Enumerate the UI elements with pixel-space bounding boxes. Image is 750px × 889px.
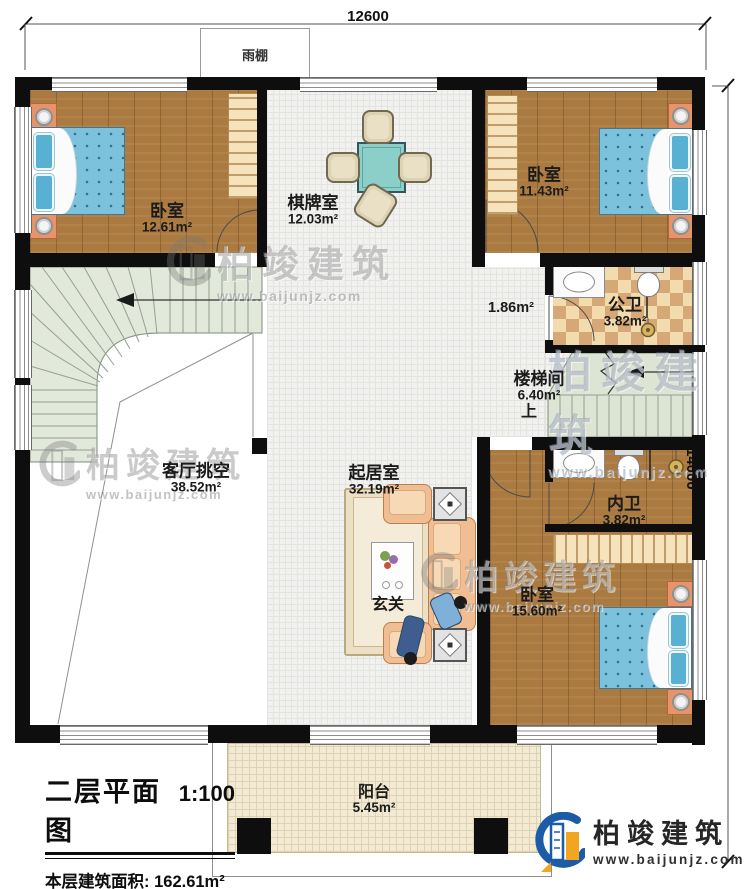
balcony-door [310, 725, 430, 745]
cushion [433, 558, 461, 590]
lamp-icon [672, 693, 690, 711]
nightstand [667, 581, 694, 607]
wall-segment [15, 725, 60, 743]
pillow [34, 174, 54, 211]
side-table [433, 628, 467, 662]
chair-seat [358, 187, 394, 223]
wall-segment [477, 437, 490, 733]
chair-seat [367, 115, 389, 139]
coffee-table [371, 542, 414, 600]
stair-up-label: 上 [521, 403, 537, 420]
room-name: 卧室 [142, 203, 192, 221]
room-area: 3.82m² [603, 514, 646, 529]
nightstand [30, 103, 57, 130]
bed [599, 128, 694, 215]
room-label-game-room: 棋牌室 12.03m² [288, 195, 339, 228]
balcony-column [474, 818, 508, 854]
wall-segment [692, 215, 705, 262]
wall-segment [257, 90, 267, 267]
window [692, 560, 707, 700]
floor-plan-canvas: 12600 14000 雨棚 [0, 0, 750, 889]
room-label-bedroom-bottom-right: 卧室 15.60m² [512, 587, 562, 620]
plan-title: 二层平面图 [45, 770, 169, 848]
curved-staircase [30, 267, 262, 462]
room-area: 5.45m² [353, 801, 396, 816]
room-name: 棋牌室 [288, 195, 339, 213]
room-label-private-bath: 内卫 3.82m² [603, 496, 646, 529]
person-figure [392, 614, 428, 666]
room-label-balcony: 阳台 5.45m² [353, 784, 396, 816]
room-name: 楼梯间 [514, 371, 565, 389]
room-name: 卧室 [519, 167, 569, 185]
bed [599, 607, 692, 689]
toilet [634, 263, 662, 297]
person-head [404, 652, 417, 665]
window [14, 107, 32, 233]
wall-segment [540, 253, 692, 267]
wall-segment [15, 233, 30, 290]
lamp-icon [672, 107, 690, 125]
room-name: 内卫 [603, 496, 646, 514]
toilet-bowl [637, 272, 660, 297]
lamp-icon [672, 217, 690, 235]
side-table [433, 487, 467, 521]
window [692, 352, 707, 435]
room-name: 公卫 [604, 297, 647, 315]
plant-icon [384, 562, 391, 569]
pillow [669, 651, 688, 686]
company-website: www.baijunjz.com [593, 852, 745, 867]
room-area: 3.82m² [604, 315, 647, 330]
up-text: 上 [521, 403, 537, 420]
wall-segment [15, 77, 30, 107]
chair-seat [403, 157, 427, 178]
balcony-column [237, 818, 271, 854]
chair-seat [331, 157, 355, 178]
toilet [614, 446, 642, 480]
cushion [433, 523, 461, 555]
room-name: 客厅挑空 [162, 463, 230, 481]
pillow [34, 133, 54, 170]
person-figure [432, 588, 472, 632]
window [300, 77, 437, 92]
wall-segment [657, 725, 705, 743]
wall-segment [208, 725, 310, 743]
wall-segment [545, 450, 553, 482]
wall-segment [437, 77, 527, 90]
nightstand [30, 212, 57, 239]
wall-post [252, 438, 267, 454]
room-label-hall-nook: 1.86m² [488, 301, 534, 317]
room-area: 38.52m² [162, 481, 230, 496]
window [517, 725, 657, 745]
sink [553, 266, 605, 298]
dimension-width-label: 12600 [347, 8, 389, 25]
room-name: 玄关 [372, 596, 404, 613]
window [52, 77, 187, 92]
nightstand [667, 689, 694, 715]
room-area: 32.19m² [349, 483, 400, 498]
company-logo-icon [531, 812, 585, 876]
floor-area-label: 本层建筑面积: [45, 873, 150, 889]
game-table-inner [362, 147, 401, 188]
title-underline [45, 858, 235, 859]
wall-segment [545, 345, 692, 353]
room-area: 15.60m² [512, 605, 562, 620]
wardrobe [553, 534, 694, 564]
cup-icon [382, 581, 390, 589]
wall-segment [15, 450, 30, 743]
wardrobe [487, 95, 518, 215]
title-underline [45, 852, 235, 855]
pillow [670, 175, 690, 212]
room-area: 12.03m² [288, 213, 339, 228]
title-block: 二层平面图 1:100 本层建筑面积: 162.61m² 层高: 3.3m [45, 770, 235, 889]
side-table-center [448, 502, 453, 507]
wall-segment [692, 345, 705, 352]
window [60, 725, 208, 745]
window [14, 385, 32, 450]
bed [30, 127, 125, 215]
chair [362, 110, 394, 144]
wall-segment [532, 437, 692, 450]
nightstand [668, 103, 694, 129]
wall-segment [30, 253, 215, 267]
room-label-living-void: 客厅挑空 38.52m² [162, 463, 230, 496]
plan-scale: 1:100 [179, 781, 235, 807]
window [14, 290, 32, 378]
dimension-depth-label: 14000 [683, 448, 700, 490]
chair [398, 152, 432, 183]
wall-segment [15, 378, 30, 385]
room-label-stairwell: 楼梯间 6.40m² [514, 371, 565, 404]
window [692, 130, 707, 215]
floor-area-value: 162.61m² [154, 873, 225, 889]
door-arcs [217, 200, 594, 528]
room-label-bedroom-top-right: 卧室 11.43m² [519, 167, 569, 200]
room-area: 1.86m² [488, 301, 534, 317]
room-name: 阳台 [353, 784, 396, 801]
lamp-icon [672, 585, 690, 603]
pillow [669, 613, 688, 648]
wall-segment [545, 267, 553, 295]
wall-segment [472, 90, 485, 267]
window [692, 262, 707, 345]
room-name: 起居室 [349, 465, 400, 483]
room-area: 6.40m² [514, 389, 565, 404]
wall-segment [430, 725, 517, 743]
person-head [454, 596, 467, 609]
toilet-bowl [617, 455, 640, 480]
wall-segment [692, 77, 705, 130]
stairwell-stairs [548, 351, 692, 437]
lamp-icon [35, 108, 53, 126]
wall-segment [187, 77, 300, 90]
sink-basin [563, 453, 595, 473]
room-label-sitting-room: 起居室 32.19m² [349, 465, 400, 498]
room-label-entry: 玄关 [372, 596, 404, 613]
room-area: 12.61m² [142, 221, 192, 236]
company-name: 柏竣建筑 [593, 821, 745, 848]
chair [326, 152, 360, 183]
company-logo: 柏竣建筑 www.baijunjz.com [531, 812, 745, 876]
room-label-public-bath: 公卫 3.82m² [604, 297, 647, 330]
room-area: 11.43m² [519, 185, 569, 200]
side-table-center [448, 643, 453, 648]
lamp-icon [35, 217, 53, 235]
wardrobe [228, 93, 259, 199]
window [527, 77, 657, 92]
room-label-bedroom-top-left: 卧室 12.61m² [142, 203, 192, 236]
cup-icon [395, 581, 403, 589]
sink-basin [563, 272, 595, 293]
pillow [670, 134, 690, 171]
nightstand [668, 213, 694, 239]
room-name: 卧室 [512, 587, 562, 605]
sink [553, 448, 605, 478]
